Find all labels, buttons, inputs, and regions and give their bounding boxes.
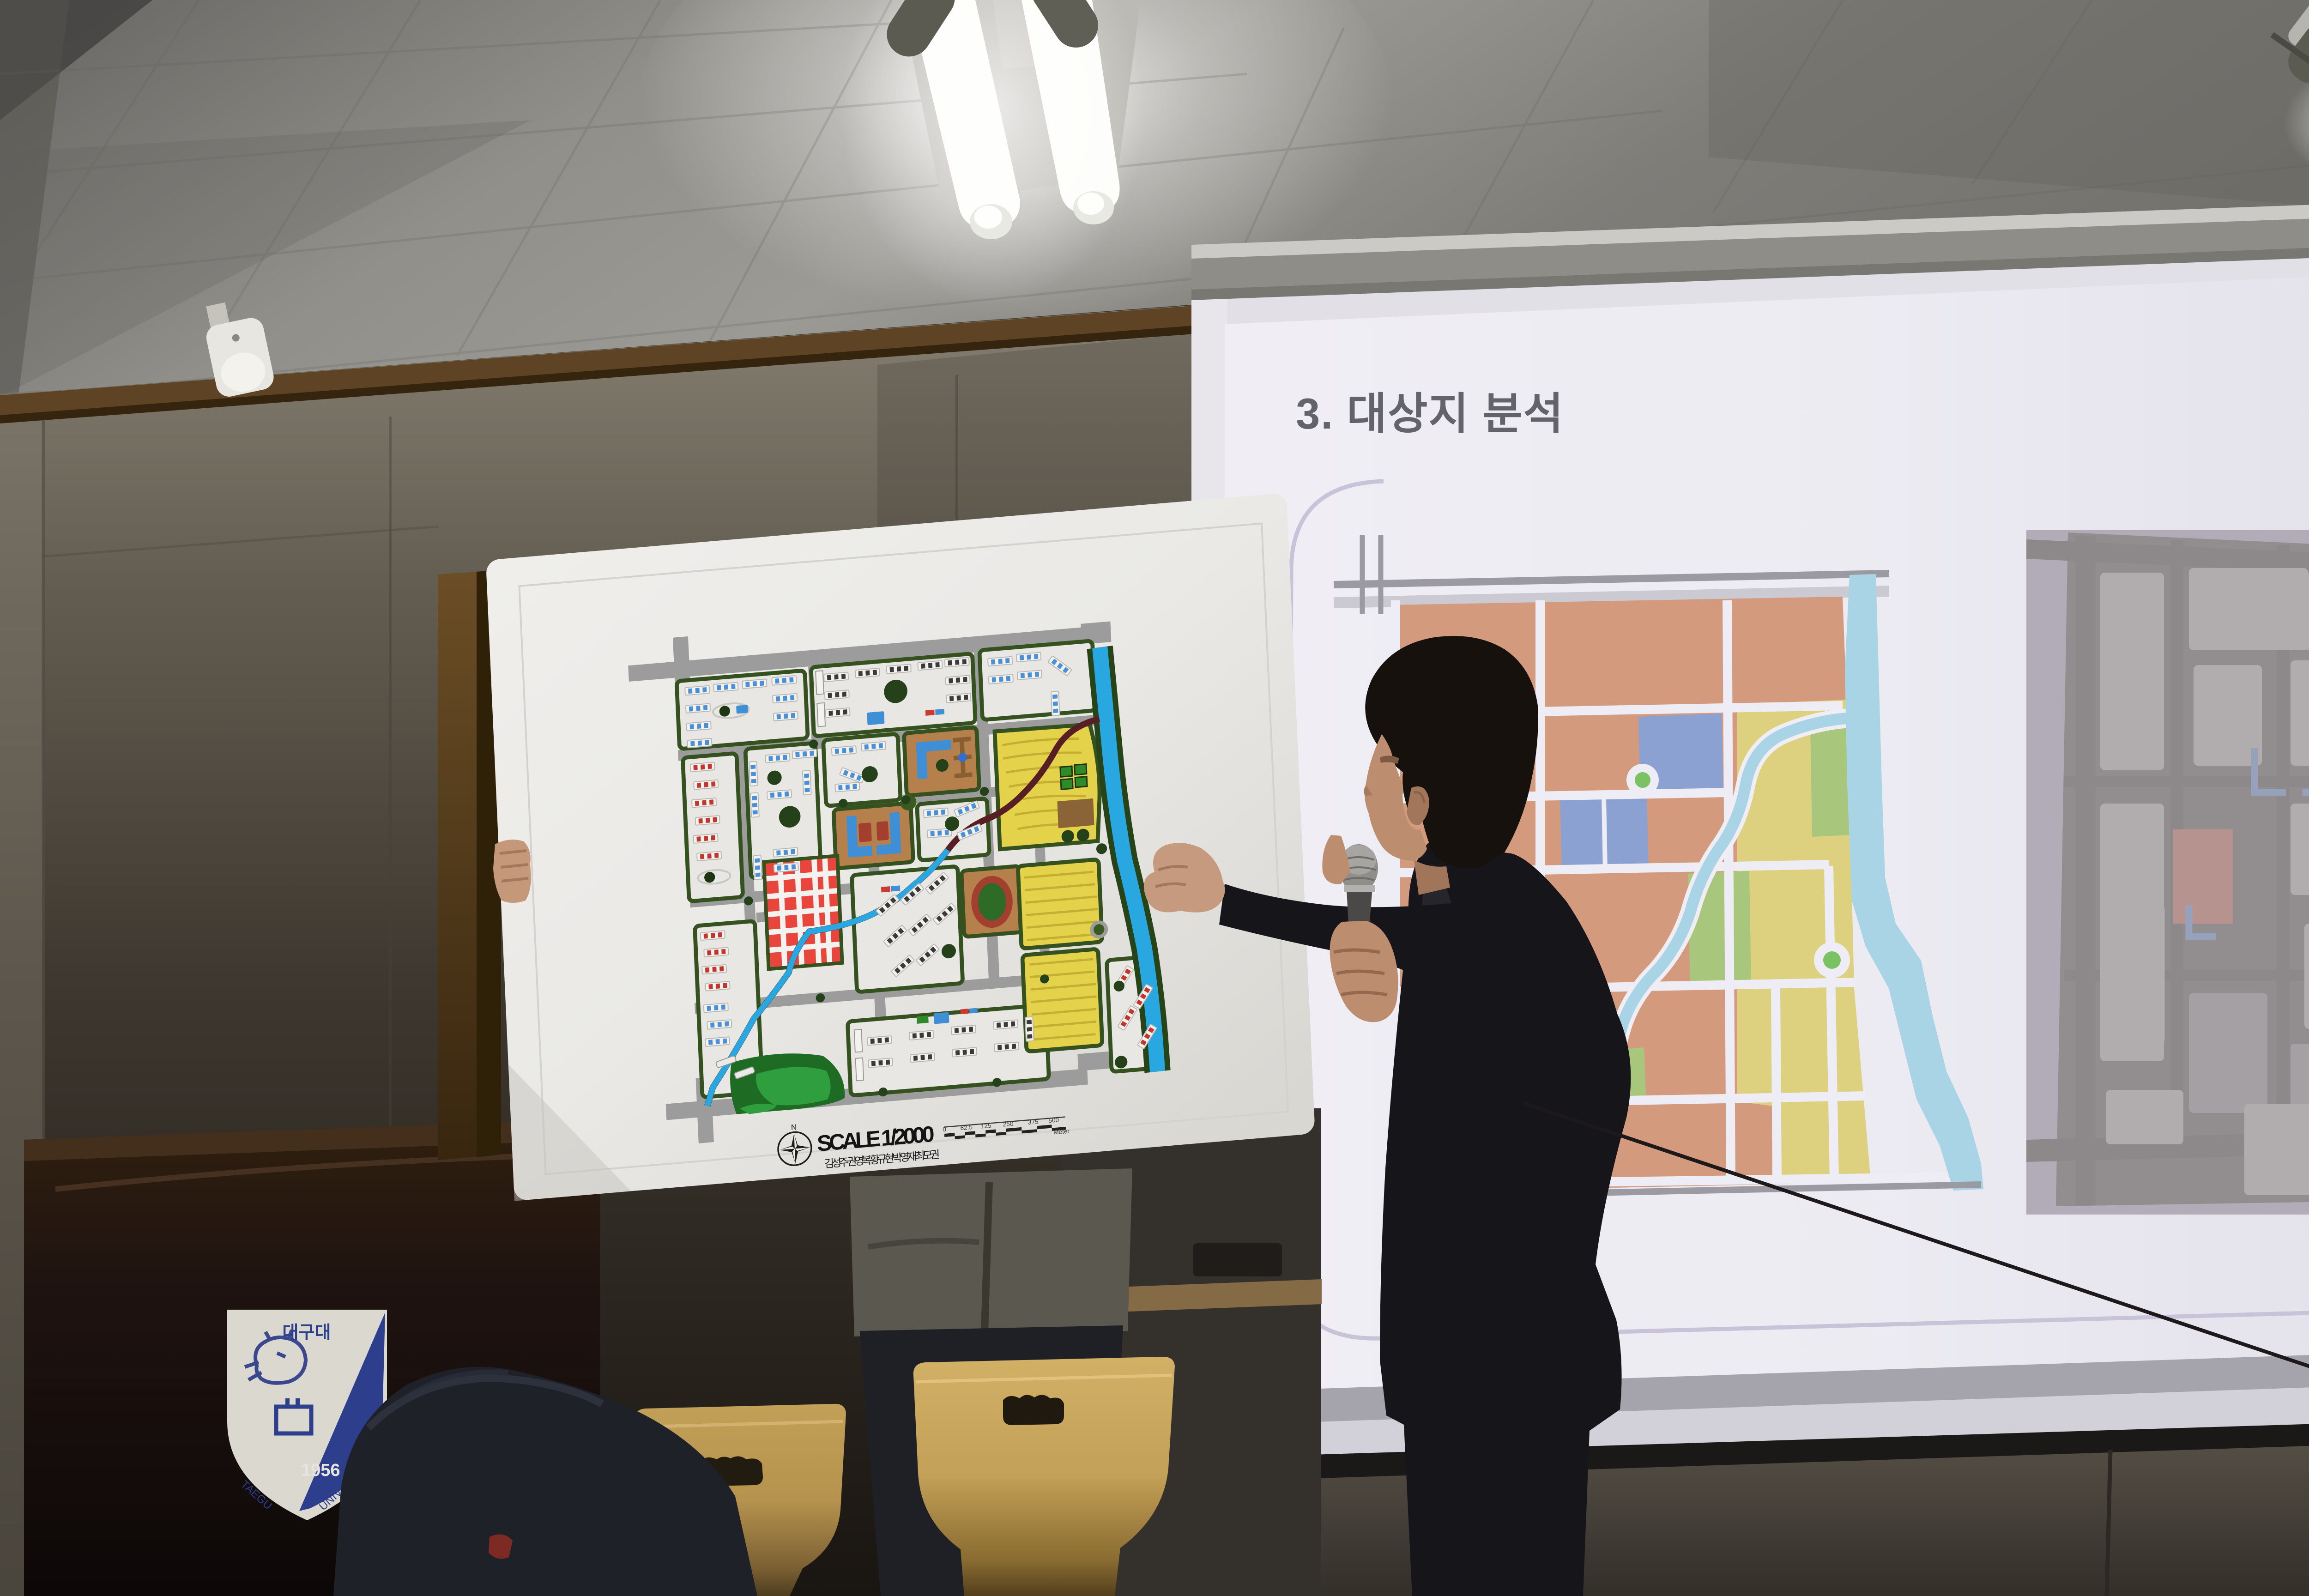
svg-text:3. 대상지 분석: 3. 대상지 분석 [1296, 389, 1564, 438]
svg-text:Meter: Meter [1053, 1128, 1070, 1136]
svg-text:125: 125 [981, 1122, 991, 1130]
svg-text:N: N [791, 1123, 797, 1132]
svg-text:250: 250 [1003, 1120, 1014, 1128]
svg-text:1956: 1956 [301, 1461, 340, 1480]
svg-text:0: 0 [943, 1126, 946, 1133]
svg-text:375: 375 [1028, 1118, 1039, 1126]
svg-text:62.5: 62.5 [960, 1124, 973, 1131]
svg-text:500: 500 [1048, 1116, 1059, 1124]
